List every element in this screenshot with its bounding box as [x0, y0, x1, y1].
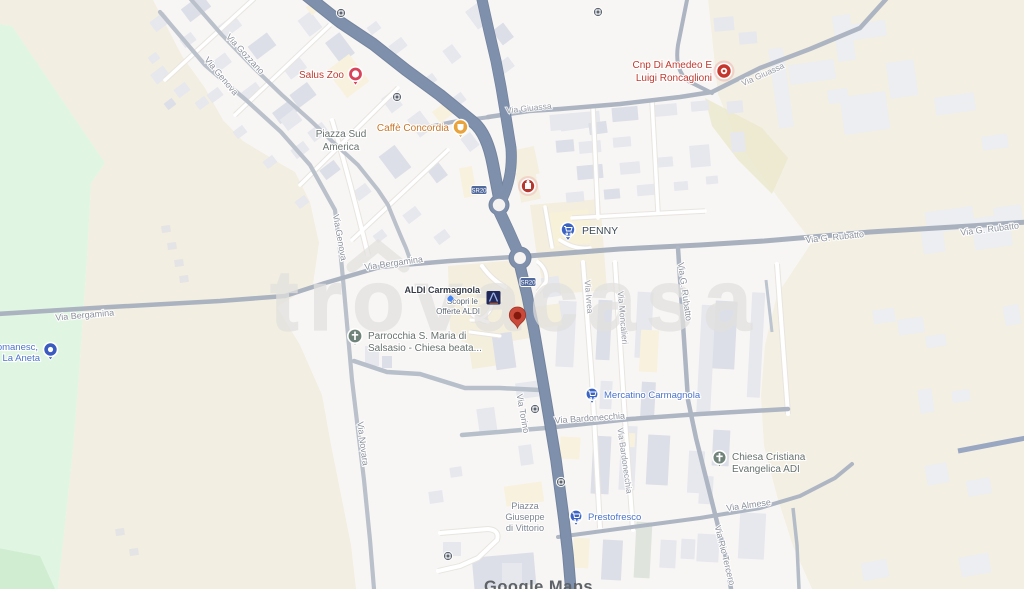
svg-text:SR20: SR20 — [471, 189, 487, 195]
svg-text:Cnp Di Amedeo E: Cnp Di Amedeo E — [633, 60, 713, 71]
svg-text:omanesc,: omanesc, — [0, 342, 38, 353]
svg-text:Mercatino Carmagnola: Mercatino Carmagnola — [604, 390, 701, 401]
svg-text:Salsasio - Chiesa beata...: Salsasio - Chiesa beata... — [368, 343, 482, 354]
svg-text:Google Maps: Google Maps — [484, 578, 593, 589]
svg-text:Giuseppe: Giuseppe — [505, 512, 544, 522]
svg-text:ALDI Carmagnola: ALDI Carmagnola — [404, 285, 481, 295]
svg-text:di Vittorio: di Vittorio — [506, 523, 544, 533]
svg-text:La Aneta: La Aneta — [2, 353, 40, 364]
svg-text:Parrocchia S. Maria di: Parrocchia S. Maria di — [368, 331, 466, 342]
svg-text:Luigi Roncaglioni: Luigi Roncaglioni — [636, 73, 712, 84]
svg-text:America: America — [323, 142, 360, 153]
svg-text:Salus Zoo: Salus Zoo — [299, 70, 344, 81]
svg-text:Caffè Concordia: Caffè Concordia — [377, 123, 450, 134]
svg-text:Evangelica ADI: Evangelica ADI — [732, 464, 800, 475]
svg-text:SR20: SR20 — [520, 281, 536, 287]
svg-text:Piazza: Piazza — [511, 501, 539, 511]
svg-text:Chiesa Cristiana: Chiesa Cristiana — [732, 452, 806, 463]
svg-text:PENNY: PENNY — [582, 225, 618, 237]
svg-text:Piazza Sud: Piazza Sud — [316, 129, 367, 140]
svg-text:Offerte ALDI: Offerte ALDI — [436, 307, 480, 316]
svg-text:Prestofresco: Prestofresco — [588, 512, 641, 523]
